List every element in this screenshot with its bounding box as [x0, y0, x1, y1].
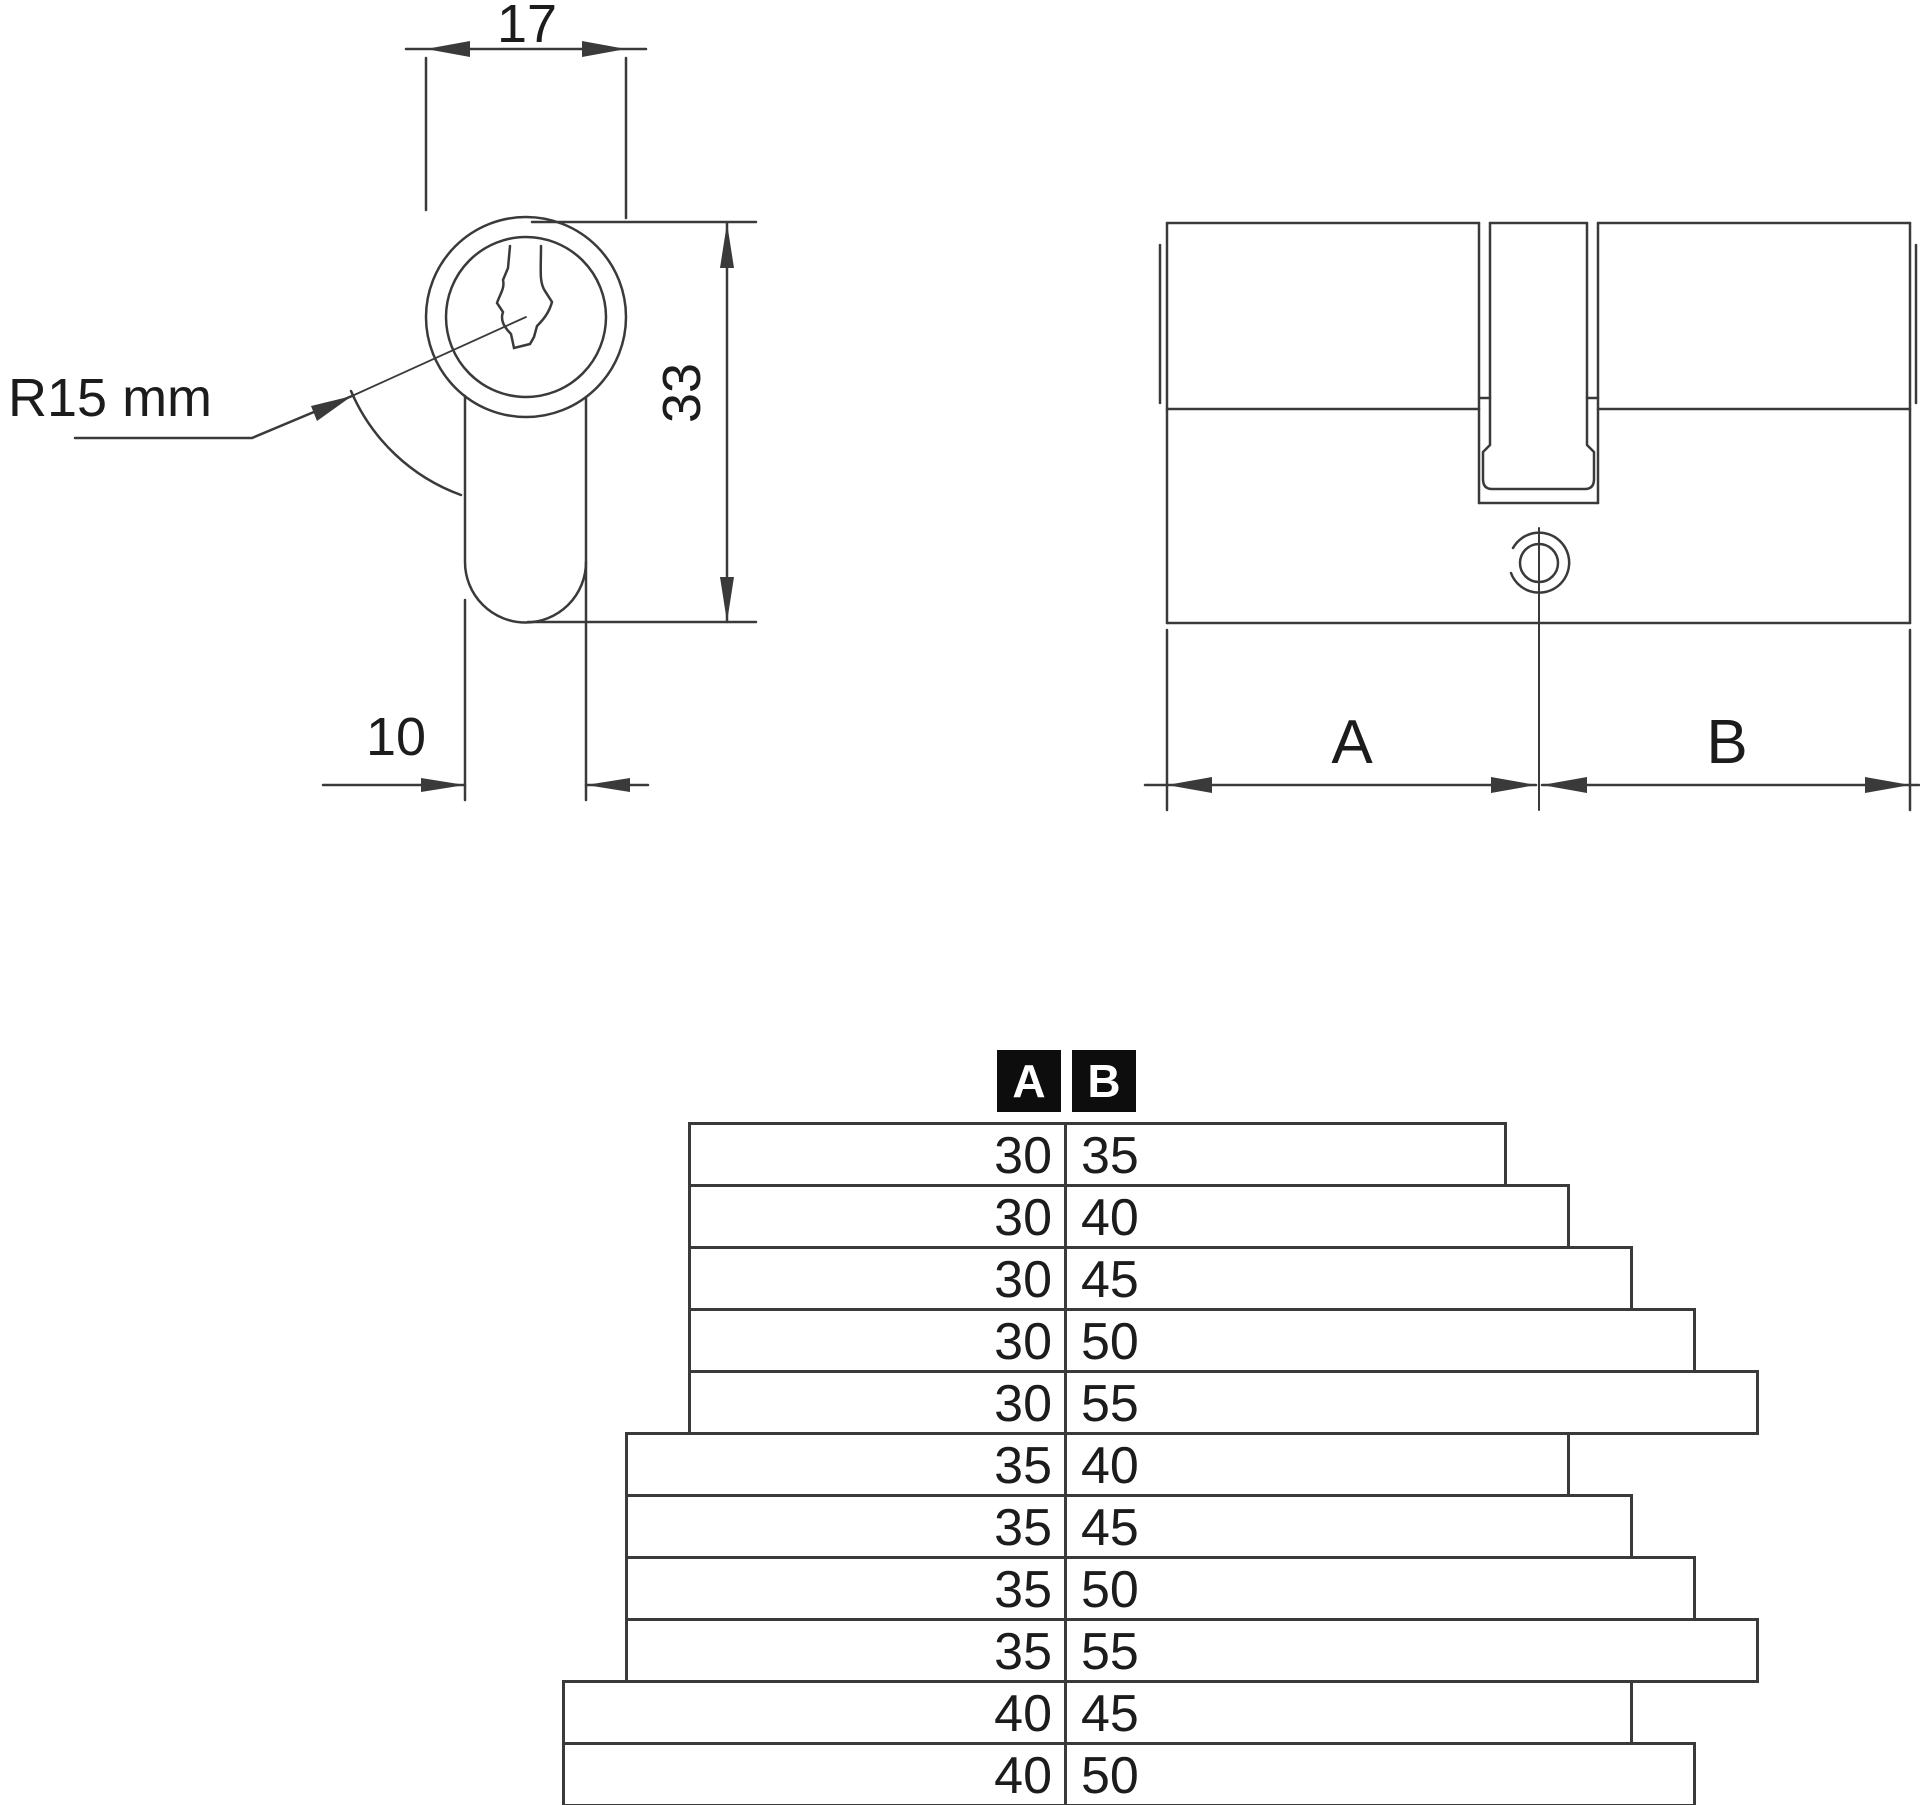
col-a-value: 40 — [904, 1745, 1052, 1805]
table-header-b: B — [1072, 1050, 1136, 1112]
col-a-value: 30 — [904, 1249, 1052, 1311]
dim-height-33 — [528, 222, 756, 622]
col-a-value: 30 — [904, 1125, 1052, 1187]
col-b-value: 50 — [1081, 1311, 1139, 1373]
col-a-value: 40 — [904, 1683, 1052, 1745]
cam — [1479, 223, 1598, 503]
table-row: 3035 — [688, 1122, 1507, 1187]
table-row: 3045 — [688, 1246, 1633, 1311]
arrow-up-icon — [720, 223, 734, 268]
col-a-value: 35 — [904, 1559, 1052, 1621]
profile-tail — [465, 396, 586, 623]
table-row: 4050 — [562, 1742, 1696, 1805]
table-row: 3540 — [625, 1432, 1570, 1497]
col-b-value: 50 — [1081, 1559, 1139, 1621]
table-row: 3545 — [625, 1494, 1633, 1559]
dim-tail-label: 10 — [366, 707, 426, 767]
technical-drawing-page: 17 R15 mm 33 10 — [0, 0, 1920, 1805]
col-a-value: 35 — [904, 1621, 1052, 1683]
col-b-value: 55 — [1081, 1621, 1139, 1683]
table-row: 3550 — [625, 1556, 1696, 1621]
dim-width-label: 17 — [497, 0, 557, 54]
col-a-value: 35 — [904, 1497, 1052, 1559]
dim-a-b — [1145, 630, 1919, 810]
dim-b-label: B — [1706, 708, 1747, 777]
col-b-value: 55 — [1081, 1373, 1139, 1435]
col-b-value: 35 — [1081, 1125, 1139, 1187]
col-b-value: 45 — [1081, 1497, 1139, 1559]
dim-width-17 — [406, 41, 646, 218]
dim-a-label: A — [1331, 708, 1373, 777]
radius-arrow-icon — [311, 396, 352, 421]
table-header-a: A — [997, 1050, 1061, 1112]
col-b-value: 45 — [1081, 1249, 1139, 1311]
side-view — [1145, 223, 1919, 810]
keyway-fill — [497, 246, 552, 348]
arrow-right-icon — [582, 41, 626, 57]
table-row: 3055 — [688, 1370, 1759, 1435]
col-a-value: 35 — [904, 1435, 1052, 1497]
col-b-value: 40 — [1081, 1435, 1139, 1497]
col-b-value: 45 — [1081, 1683, 1139, 1745]
radius-label: R15 mm — [8, 368, 212, 428]
arrow-left-icon — [1167, 777, 1212, 793]
table-row: 3555 — [625, 1618, 1759, 1683]
arrow-right-icon — [421, 778, 465, 792]
col-b-value: 40 — [1081, 1187, 1139, 1249]
arrow-right-icon — [1865, 777, 1910, 793]
arrow-left-icon — [1542, 777, 1587, 793]
arrow-right-icon — [1491, 777, 1536, 793]
table-divider — [1064, 1122, 1067, 1805]
screw-icon — [1511, 533, 1569, 593]
table-row: 4045 — [562, 1680, 1633, 1745]
arrow-left-icon — [426, 41, 470, 57]
radius-arc — [351, 391, 461, 495]
dim-height-label: 33 — [652, 363, 712, 423]
arrow-down-icon — [720, 577, 734, 622]
col-a-value: 30 — [904, 1373, 1052, 1435]
col-a-value: 30 — [904, 1311, 1052, 1373]
table-row: 3050 — [688, 1308, 1696, 1373]
arrow-left-icon — [586, 778, 630, 792]
col-b-value: 50 — [1081, 1745, 1139, 1805]
col-a-value: 30 — [904, 1187, 1052, 1249]
table-row: 3040 — [688, 1184, 1570, 1249]
